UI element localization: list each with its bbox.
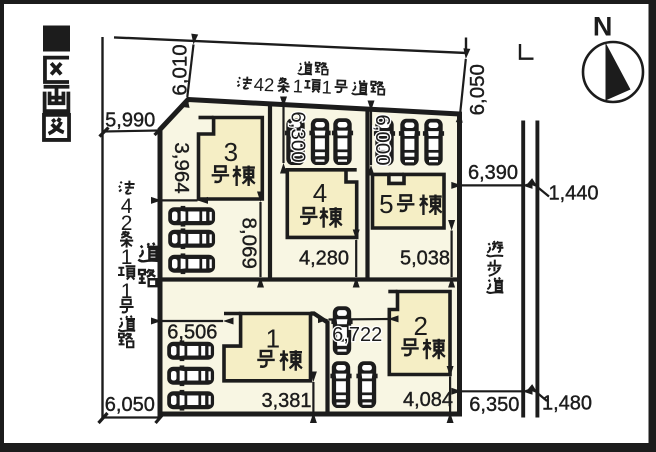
svg-text:6,000: 6,000 (371, 114, 394, 165)
svg-text:2: 2 (264, 74, 275, 95)
svg-text:6,050: 6,050 (466, 64, 489, 115)
svg-text:5,990: 5,990 (105, 110, 155, 132)
svg-text:6,722: 6,722 (332, 324, 382, 346)
svg-text:6,010: 6,010 (169, 44, 192, 95)
svg-text:4,084: 4,084 (403, 389, 453, 411)
svg-text:1: 1 (121, 280, 133, 303)
svg-text:2: 2 (413, 311, 427, 341)
svg-text:1: 1 (292, 75, 303, 96)
svg-text:6,390: 6,390 (468, 162, 518, 184)
svg-text:1,440: 1,440 (549, 183, 599, 205)
svg-text:1: 1 (266, 324, 280, 354)
svg-text:8,069: 8,069 (238, 218, 261, 269)
svg-text:4: 4 (313, 178, 327, 208)
svg-text:3,381: 3,381 (261, 390, 311, 412)
svg-text:N: N (593, 12, 613, 42)
svg-text:4,280: 4,280 (299, 248, 349, 270)
svg-text:6,300: 6,300 (286, 111, 309, 162)
svg-text:5,038: 5,038 (400, 248, 450, 270)
svg-text:6,506: 6,506 (167, 322, 217, 344)
svg-text:1,480: 1,480 (542, 393, 592, 415)
svg-text:6,050: 6,050 (105, 394, 155, 416)
svg-text:6,350: 6,350 (469, 394, 519, 416)
svg-text:1: 1 (121, 246, 133, 269)
svg-text:5: 5 (379, 189, 393, 219)
svg-text:3: 3 (224, 137, 238, 167)
svg-text:3,964: 3,964 (170, 142, 193, 193)
svg-text:2: 2 (121, 212, 133, 235)
svg-text:1: 1 (321, 76, 332, 97)
